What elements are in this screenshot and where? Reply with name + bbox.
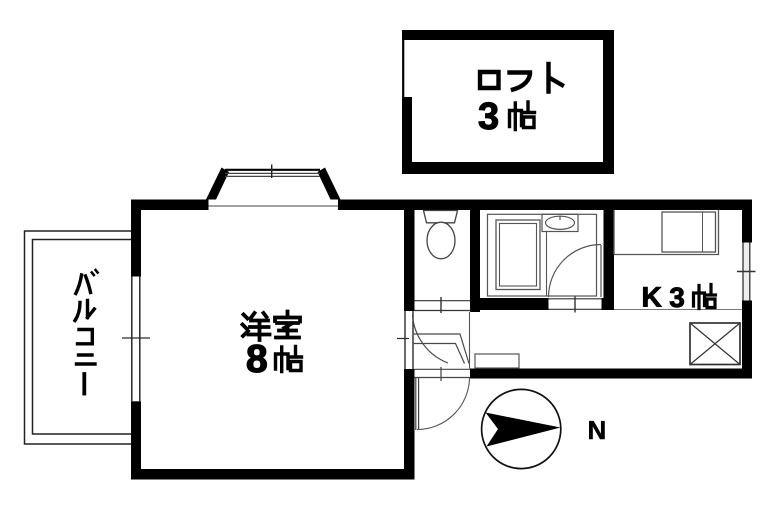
svg-text:K: K bbox=[642, 281, 662, 312]
svg-text:8: 8 bbox=[246, 338, 268, 381]
svg-text:3: 3 bbox=[669, 282, 685, 313]
svg-text:3: 3 bbox=[478, 96, 499, 138]
svg-text:N: N bbox=[588, 415, 607, 445]
